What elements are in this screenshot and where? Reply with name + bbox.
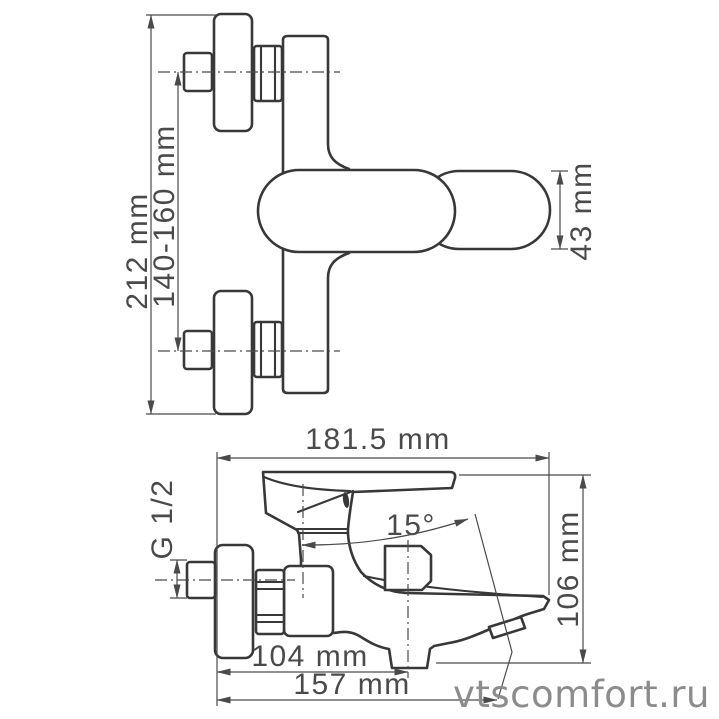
dim-thread-extensions — [170, 560, 187, 598]
technical-drawing: 212 mm 140-160 mm 43 mm 181. — [0, 0, 719, 719]
dim-height-side-label: 106 mm — [552, 510, 585, 627]
side-view: 181.5 mm G 1/2 15° 106 mm 104 mm 157 mm — [146, 423, 591, 706]
dim-mounting-label: 140-160 mm — [148, 124, 181, 307]
front-view: 212 mm 140-160 mm 43 mm — [121, 14, 598, 414]
dim-handle-height-label: 43 mm — [565, 161, 598, 260]
dim-handle-height: 43 mm — [551, 161, 598, 260]
wall-pipe-bottom — [184, 331, 212, 369]
flange-bottom — [214, 291, 252, 414]
hex-nut-bottom — [254, 322, 282, 377]
flange-side — [215, 545, 253, 658]
hex-nut-top — [254, 46, 282, 101]
body-capsule — [258, 170, 455, 252]
dim-total-reach-label: 157 mm — [293, 668, 410, 701]
watermark-text: vtscomfort.ru — [453, 673, 710, 716]
dim-thread-label: G 1/2 — [146, 479, 179, 560]
drawing-canvas: 212 mm 140-160 mm 43 mm 181. — [0, 0, 719, 719]
dim-depth-label: 181.5 mm — [305, 423, 450, 456]
eccentric-connector — [284, 566, 333, 636]
dim-angle-label: 15° — [386, 509, 436, 542]
